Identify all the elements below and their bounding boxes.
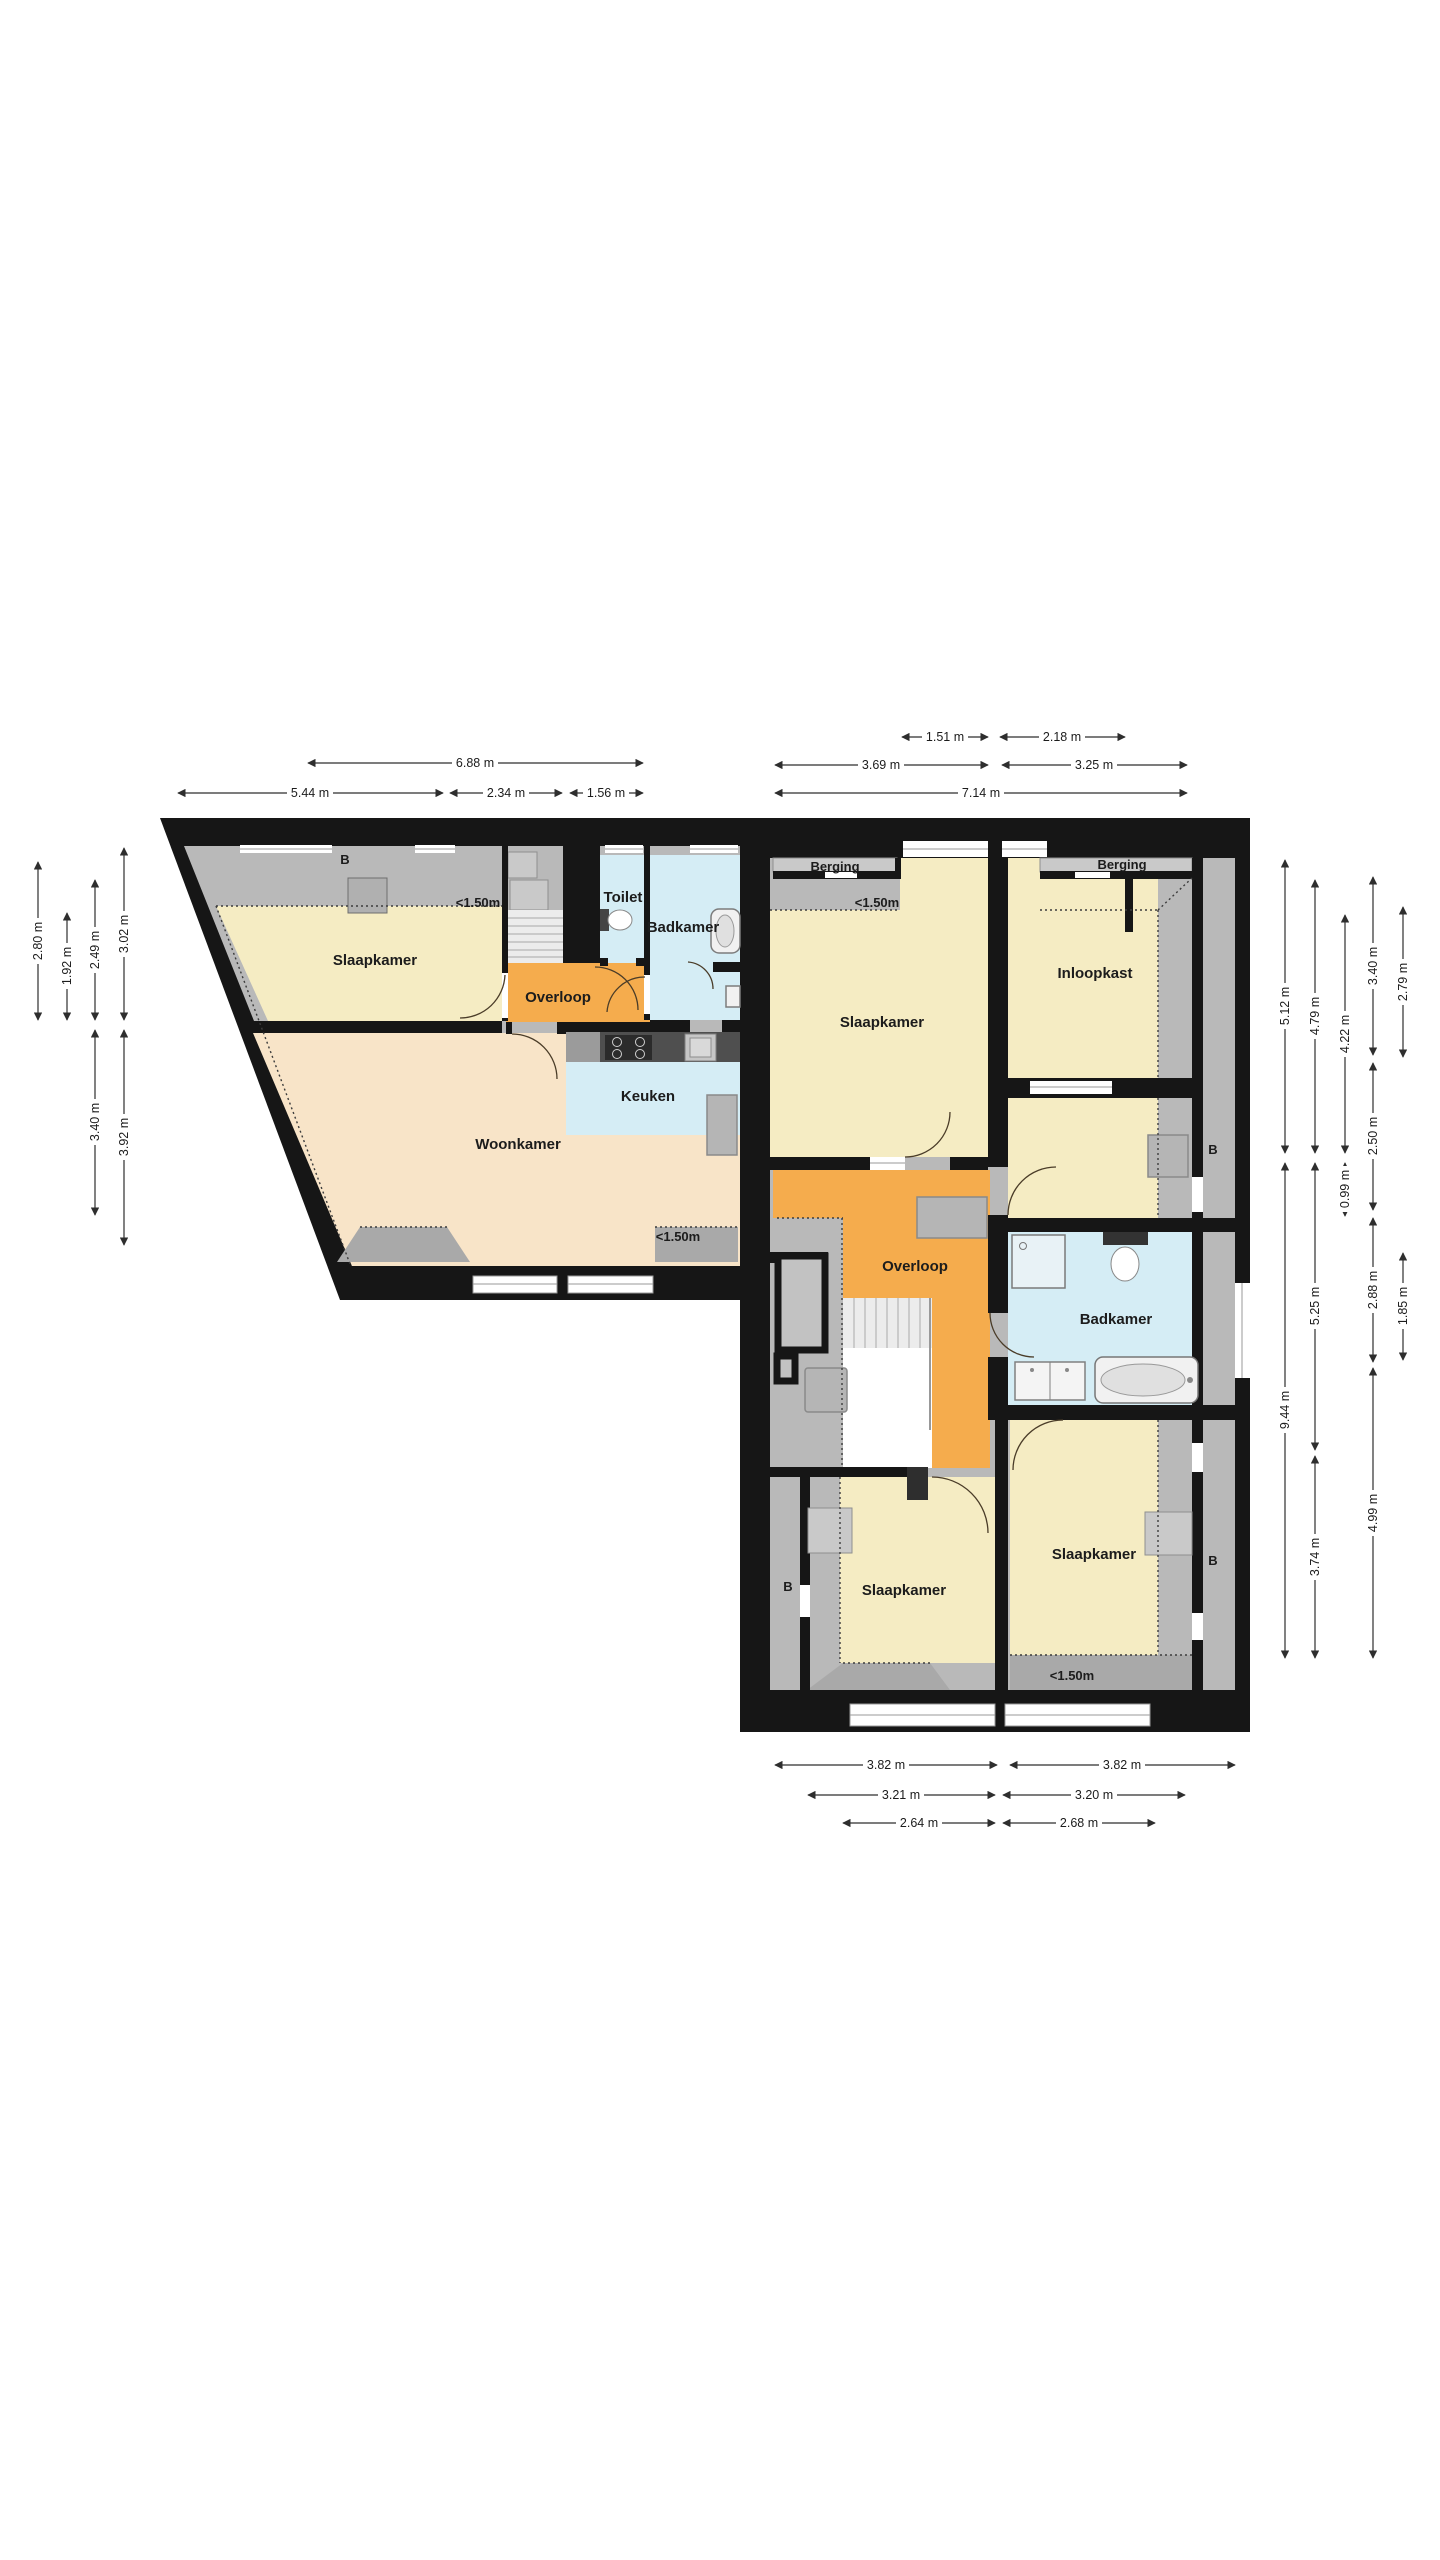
dim-left-1: 1.92 m — [59, 913, 74, 1020]
svg-text:5.44 m: 5.44 m — [291, 786, 329, 800]
svg-text:1.85 m: 1.85 m — [1396, 1287, 1410, 1325]
dim-left-2: 2.49 m — [87, 880, 102, 1020]
svg-text:3.40 m: 3.40 m — [1366, 947, 1380, 985]
sink-icon-left — [726, 986, 740, 1007]
svg-text:6.88 m: 6.88 m — [456, 756, 494, 770]
height-limit-label: <1.50m — [855, 895, 899, 910]
label-berging-2: Berging — [1097, 857, 1146, 872]
svg-text:2.80 m: 2.80 m — [31, 922, 45, 960]
shower-icon — [1012, 1235, 1065, 1288]
dim-right-4: 3.74 m — [1307, 1456, 1322, 1658]
dim-top-5: 2.18 m — [1000, 729, 1125, 744]
dim-bottom-0: 3.82 m — [775, 1757, 997, 1772]
label-toilet: Toilet — [604, 889, 643, 906]
svg-text:3.20 m: 3.20 m — [1075, 1788, 1113, 1802]
svg-text:7.14 m: 7.14 m — [962, 786, 1000, 800]
dim-right-0: 5.12 m — [1277, 860, 1292, 1153]
vestibule — [1008, 1098, 1158, 1218]
dim-top-0: 6.88 m — [308, 755, 643, 770]
low-height-band-bottom — [1010, 1655, 1192, 1690]
beam-label: B — [1208, 1553, 1217, 1568]
closet-box-small — [777, 1356, 795, 1381]
height-limit-label: <1.50m — [656, 1229, 700, 1244]
svg-text:3.82 m: 3.82 m — [1103, 1758, 1141, 1772]
dim-top-1: 5.44 m — [178, 785, 443, 800]
dim-left-0: 2.80 m — [30, 862, 45, 1020]
stove-icon — [605, 1035, 652, 1060]
dimensions-top: 6.88 m 5.44 m 2.34 m 1.56 m 1.51 m 2.18 … — [178, 729, 1187, 800]
svg-text:2.88 m: 2.88 m — [1366, 1271, 1380, 1309]
label-slaapkamer-4: Slaapkamer — [1052, 1546, 1136, 1563]
dim-bottom-2: 3.21 m — [808, 1787, 995, 1802]
svg-text:0.99 m: 0.99 m — [1338, 1170, 1352, 1208]
dimensions-right: 5.12 m 9.44 m 4.79 m 5.25 m 3.74 m 4.22 … — [1277, 860, 1410, 1658]
dim-top-7: 3.25 m — [1002, 757, 1187, 772]
svg-text:5.12 m: 5.12 m — [1278, 987, 1292, 1025]
dim-left-5: 3.92 m — [116, 1030, 131, 1245]
dim-right-7: 3.40 m — [1365, 877, 1380, 1055]
staircase-right — [843, 1298, 932, 1468]
dim-right-12: 1.85 m — [1395, 1253, 1410, 1360]
label-slaapkamer-2: Slaapkamer — [840, 1014, 924, 1031]
svg-text:2.18 m: 2.18 m — [1043, 730, 1081, 744]
svg-text:2.64 m: 2.64 m — [900, 1816, 938, 1830]
dormer-left — [337, 1227, 470, 1262]
svg-text:4.99 m: 4.99 m — [1366, 1494, 1380, 1532]
sideboard-icon — [917, 1197, 987, 1238]
floorplan-drawing: Slaapkamer Overloop Toilet Badkamer Keuk… — [0, 0, 1440, 2560]
bathtub-icon-right — [1095, 1357, 1198, 1403]
label-keuken: Keuken — [621, 1088, 675, 1105]
dim-right-1: 9.44 m — [1277, 1163, 1292, 1658]
room-slaapkamer-4 — [1010, 1420, 1158, 1655]
svg-text:3.69 m: 3.69 m — [862, 758, 900, 772]
svg-text:1.51 m: 1.51 m — [926, 730, 964, 744]
svg-text:2.50 m: 2.50 m — [1366, 1117, 1380, 1155]
svg-text:1.92 m: 1.92 m — [60, 947, 74, 985]
cabinet-icon — [805, 1368, 847, 1412]
dim-right-10: 4.99 m — [1365, 1368, 1380, 1658]
svg-text:3.40 m: 3.40 m — [88, 1103, 102, 1141]
svg-text:2.79 m: 2.79 m — [1396, 963, 1410, 1001]
svg-text:5.25 m: 5.25 m — [1308, 1287, 1322, 1325]
svg-text:3.02 m: 3.02 m — [117, 915, 131, 953]
dim-bottom-4: 2.64 m — [843, 1815, 995, 1830]
dim-bottom-3: 3.20 m — [1003, 1787, 1185, 1802]
label-slaapkamer-1: Slaapkamer — [333, 952, 417, 969]
svg-text:3.21 m: 3.21 m — [882, 1788, 920, 1802]
svg-text:1.56 m: 1.56 m — [587, 786, 625, 800]
label-badkamer-2: Badkamer — [1080, 1311, 1153, 1328]
svg-text:3.92 m: 3.92 m — [117, 1118, 131, 1156]
height-limit-label: <1.50m — [456, 895, 500, 910]
dim-top-3: 1.56 m — [570, 785, 643, 800]
dim-right-8: 2.50 m — [1365, 1063, 1380, 1210]
dim-left-4: 3.40 m — [87, 1030, 102, 1215]
dresser-icon — [1148, 1135, 1188, 1177]
dim-top-6: 3.69 m — [775, 757, 988, 772]
floorplan-page: Slaapkamer Overloop Toilet Badkamer Keuk… — [0, 0, 1440, 2560]
label-overloop-2: Overloop — [882, 1258, 948, 1275]
toilet-icon — [600, 909, 632, 931]
chimney — [348, 878, 387, 913]
label-berging-1: Berging — [810, 859, 859, 874]
label-woonkamer: Woonkamer — [475, 1136, 561, 1153]
closet-box — [778, 1256, 825, 1350]
beam-label: B — [340, 852, 349, 867]
label-slaapkamer-3: Slaapkamer — [862, 1582, 946, 1599]
room-slaapkamer-3 — [840, 1477, 995, 1663]
chimney-2 — [907, 1467, 928, 1500]
dim-right-5: 4.22 m — [1337, 915, 1352, 1153]
dim-left-3: 3.02 m — [116, 848, 131, 1020]
svg-text:2.34 m: 2.34 m — [487, 786, 525, 800]
dimensions-bottom: 3.82 m 3.82 m 3.21 m 3.20 m 2.64 m 2.68 … — [775, 1757, 1235, 1830]
dim-top-2: 2.34 m — [450, 785, 562, 800]
dim-top-4: 1.51 m — [902, 729, 988, 744]
label-overloop-1: Overloop — [525, 989, 591, 1006]
svg-text:3.25 m: 3.25 m — [1075, 758, 1113, 772]
height-limit-label: <1.50m — [1050, 1668, 1094, 1683]
label-inloopkast: Inloopkast — [1057, 965, 1132, 982]
beam-label: B — [1208, 1142, 1217, 1157]
dim-right-11: 2.79 m — [1395, 907, 1410, 1057]
beam-label: B — [783, 1579, 792, 1594]
svg-text:2.68 m: 2.68 m — [1060, 1816, 1098, 1830]
svg-text:3.74 m: 3.74 m — [1308, 1538, 1322, 1576]
dim-right-9: 2.88 m — [1365, 1218, 1380, 1362]
dim-right-2: 4.79 m — [1307, 880, 1322, 1153]
dim-bottom-1: 3.82 m — [1010, 1757, 1235, 1772]
label-badkamer-1: Badkamer — [647, 919, 720, 936]
dimensions-left: 2.80 m 1.92 m 2.49 m 3.02 m 3.40 m 3.92 … — [30, 848, 131, 1245]
svg-text:4.22 m: 4.22 m — [1338, 1015, 1352, 1053]
kitchen-sink-icon — [685, 1034, 716, 1061]
dim-right-3: 5.25 m — [1307, 1163, 1322, 1450]
svg-text:2.49 m: 2.49 m — [88, 931, 102, 969]
fridge-icon — [707, 1095, 737, 1155]
svg-text:4.79 m: 4.79 m — [1308, 997, 1322, 1035]
double-sink-icon — [1015, 1362, 1085, 1400]
dormer-window-right — [1145, 1512, 1192, 1555]
svg-text:9.44 m: 9.44 m — [1278, 1391, 1292, 1429]
dim-right-6: 0.99 m — [1337, 1163, 1352, 1216]
dim-top-8: 7.14 m — [775, 785, 1187, 800]
dormer-window-left — [808, 1508, 852, 1553]
dim-bottom-5: 2.68 m — [1003, 1815, 1155, 1830]
svg-text:3.82 m: 3.82 m — [867, 1758, 905, 1772]
